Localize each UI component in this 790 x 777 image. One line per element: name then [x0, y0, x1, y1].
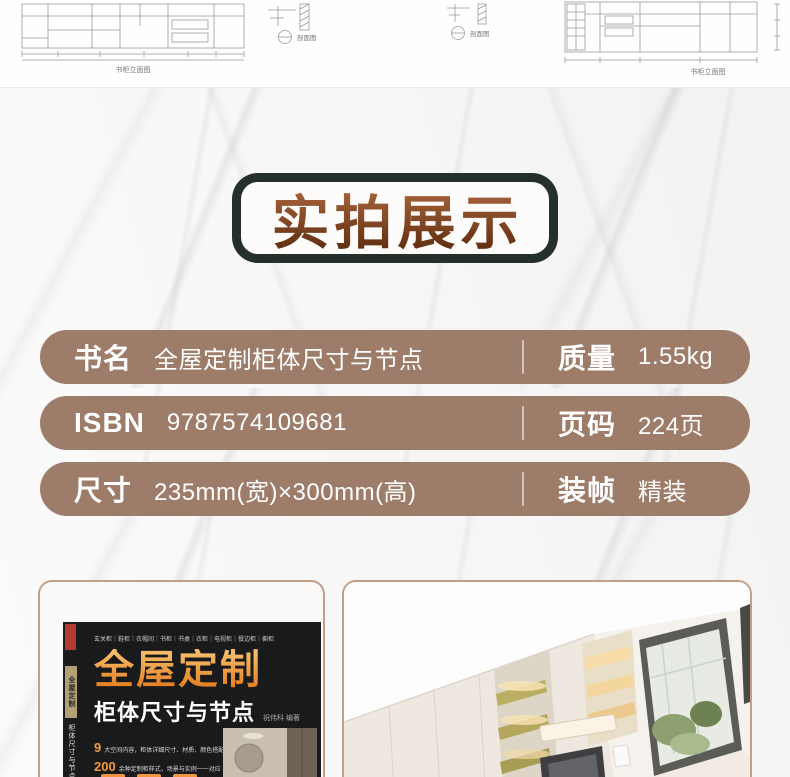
spec-label: ISBN — [74, 407, 145, 439]
spec-value: 9787574109681 — [167, 409, 347, 437]
book-mock: 全屋定制 柜体尺寸与节点 玄关柜｜鞋柜｜衣帽间｜书柜｜书桌｜衣柜｜电视柜｜餐边柜… — [63, 622, 321, 777]
interior-photo-svg — [344, 582, 750, 777]
spec-value: 全屋定制柜体尺寸与节点 — [154, 340, 424, 375]
spec-label: 质量 — [558, 337, 616, 377]
selling-point-number: 200 — [94, 759, 116, 774]
spec-row-isbn-pages: ISBN 9787574109681 页码 224页 — [40, 396, 750, 450]
spec-value: 224页 — [638, 406, 704, 441]
spine-red-band — [65, 624, 76, 650]
book-cover-photo-card[interactable]: 全屋定制 柜体尺寸与节点 玄关柜｜鞋柜｜衣帽间｜书柜｜书桌｜衣柜｜电视柜｜餐边柜… — [38, 580, 325, 777]
book-front-cover: 玄关柜｜鞋柜｜衣帽间｜书柜｜书桌｜衣柜｜电视柜｜餐边柜｜橱柜 全屋定制 柜体尺寸… — [79, 622, 321, 777]
spec-label: 书名 — [74, 337, 132, 377]
section-title-banner: 实拍展示 — [232, 173, 558, 263]
selling-point-text: 大空间内容，柜体详细尺寸、材质、颜色搭配大公开 — [104, 745, 236, 754]
spec-cell-weight: 质量 1.55kg — [524, 337, 713, 377]
spec-table: 书名 全屋定制柜体尺寸与节点 质量 1.55kg ISBN 9787574109… — [0, 330, 790, 516]
spec-cell-binding: 装帧 精装 — [524, 469, 687, 509]
left-elevation-label: 书柜立面图 — [116, 65, 151, 74]
cad-drawings-strip: 书柜立面图 剖面图 剖面图 — [0, 0, 790, 88]
cover-categories: 玄关柜｜鞋柜｜衣帽间｜书柜｜书桌｜衣柜｜电视柜｜餐边柜｜橱柜 — [94, 634, 313, 643]
book-spine: 全屋定制 柜体尺寸与节点 — [63, 622, 79, 777]
cover-selling-points: 9 大空间内容，柜体详细尺寸、材质、颜色搭配大公开 200 余种定制柜样式，场景… — [94, 740, 236, 777]
spec-cell-pages: 页码 224页 — [524, 403, 704, 443]
spec-cell-isbn: ISBN 9787574109681 — [40, 407, 522, 439]
selling-point: 200 余种定制柜样式，场景与实例一一对应 — [94, 759, 236, 774]
cover-room-photo-svg — [223, 728, 317, 777]
section-label-1: 剖面图 — [297, 33, 317, 42]
right-elevation-label: 书柜立面图 — [691, 67, 726, 76]
spec-label: 页码 — [558, 403, 616, 443]
cover-subtitle: 柜体尺寸与节点 — [94, 695, 255, 727]
spec-label: 装帧 — [558, 469, 616, 509]
cover-author: 祝伟科 编著 — [263, 713, 300, 723]
left-elevation-drawing — [22, 4, 244, 60]
section-label-2: 剖面图 — [470, 29, 490, 38]
cover-title: 全屋定制 — [94, 649, 313, 691]
banner-title: 实拍展示 — [266, 176, 523, 260]
spec-row-title-weight: 书名 全屋定制柜体尺寸与节点 质量 1.55kg — [40, 330, 750, 384]
selling-point: 9 大空间内容，柜体详细尺寸、材质、颜色搭配大公开 — [94, 740, 236, 755]
cad-drawings-svg: 书柜立面图 剖面图 剖面图 — [0, 0, 790, 88]
spec-value: 1.55kg — [638, 343, 713, 371]
product-detail-page: 书柜立面图 剖面图 剖面图 — [0, 0, 790, 777]
interior-photo-card[interactable] — [342, 580, 752, 777]
cover-room-photo — [223, 728, 317, 777]
photo-cards: 全屋定制 柜体尺寸与节点 玄关柜｜鞋柜｜衣帽间｜书柜｜书桌｜衣柜｜电视柜｜餐边柜… — [38, 580, 752, 777]
spec-value: 235mm(宽)×300mm(高) — [154, 472, 417, 507]
banner-inner: 实拍展示 — [241, 182, 549, 254]
spine-series-label: 全屋定制 — [65, 666, 77, 718]
spec-cell-book-name: 书名 全屋定制柜体尺寸与节点 — [40, 337, 522, 377]
cover-subtitle-row: 柜体尺寸与节点 祝伟科 编著 — [94, 695, 313, 727]
right-elevation-drawing — [565, 2, 780, 63]
selling-point-text: 余种定制柜样式，场景与实例一一对应 — [119, 764, 221, 773]
spec-label: 尺寸 — [74, 469, 132, 509]
spec-value: 精装 — [638, 472, 687, 507]
content-area: 实拍展示 书名 全屋定制柜体尺寸与节点 质量 1.55kg ISBN 97875… — [0, 88, 790, 777]
selling-point-number: 9 — [94, 740, 101, 755]
spine-title-text: 柜体尺寸与节点 — [65, 724, 77, 777]
spec-cell-size: 尺寸 235mm(宽)×300mm(高) — [40, 469, 522, 509]
spec-row-size-binding: 尺寸 235mm(宽)×300mm(高) 装帧 精装 — [40, 462, 750, 516]
